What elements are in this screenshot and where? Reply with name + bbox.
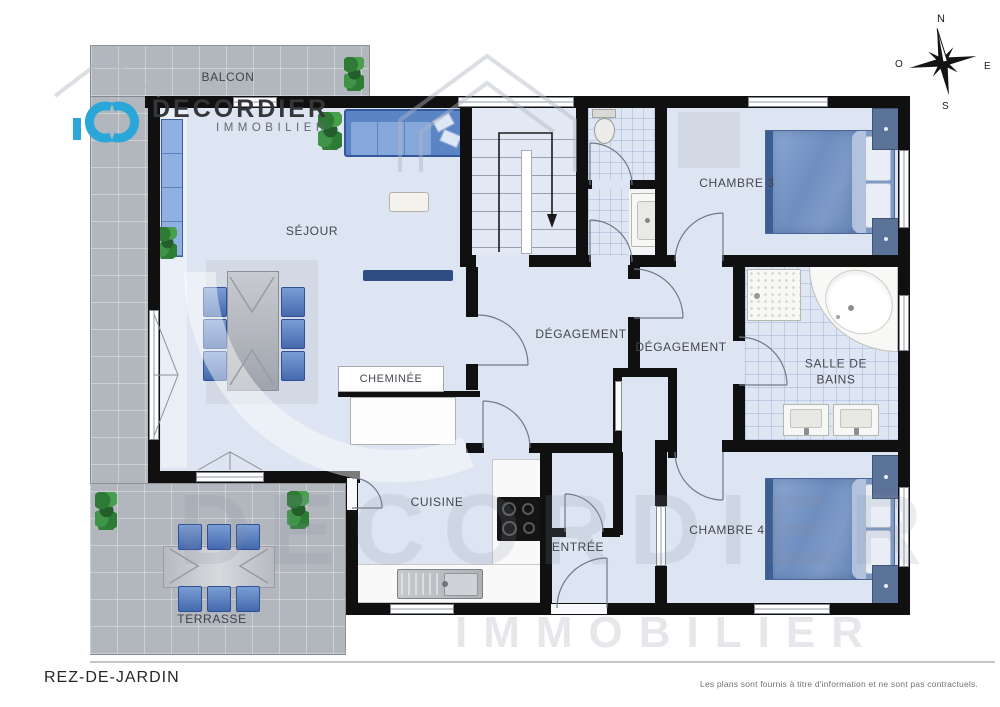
room-label-terrasse: TERRASSE xyxy=(177,612,246,626)
terrace-door xyxy=(196,472,264,482)
dining-chair xyxy=(281,287,305,317)
room-label-degagement-2: DÉGAGEMENT xyxy=(635,340,726,354)
staircase xyxy=(472,108,576,255)
room-label-degagement-1: DÉGAGEMENT xyxy=(535,327,626,341)
wall xyxy=(733,255,745,341)
brand-logo: DECORDIER IMMOBILIER xyxy=(73,90,423,150)
brand-tagline: IMMOBILIER xyxy=(216,122,329,134)
window xyxy=(899,487,909,567)
dining-chair xyxy=(203,319,227,349)
fireplace-label: CHEMINÉE xyxy=(360,373,423,385)
closet-door-panel xyxy=(615,381,622,431)
room-label-chambre4: CHAMBRE 4 xyxy=(689,523,764,537)
window xyxy=(899,295,909,351)
dining-chair xyxy=(203,351,227,381)
dining-chair xyxy=(203,287,227,317)
dining-chair xyxy=(281,319,305,349)
nightstand xyxy=(872,218,900,260)
dining-table xyxy=(227,271,279,391)
washroom-floor xyxy=(588,189,631,255)
bed-duvet xyxy=(773,479,856,579)
window xyxy=(390,604,454,614)
sink-basin xyxy=(444,573,478,596)
shower xyxy=(747,269,801,321)
wall xyxy=(529,443,613,453)
nightstand xyxy=(872,565,900,607)
fireplace-label-box: CHEMINÉE xyxy=(338,366,444,392)
toilet-tank xyxy=(592,109,616,118)
terrace-table xyxy=(163,546,275,588)
washbasin-faucet xyxy=(645,218,650,223)
entry-door-gap xyxy=(551,604,607,614)
window xyxy=(754,604,830,614)
footer-divider xyxy=(90,661,995,663)
wall xyxy=(540,528,566,537)
fireplace-hearth xyxy=(350,397,456,445)
wall xyxy=(576,180,592,189)
bathroom-sink-faucet xyxy=(854,428,859,435)
nightstand xyxy=(872,108,900,150)
stair-stringer xyxy=(521,150,532,254)
floor-level-title: REZ-DE-JARDIN xyxy=(44,669,180,687)
coffee-table xyxy=(389,192,429,212)
wall xyxy=(655,440,677,452)
bed-duvet xyxy=(773,131,856,233)
wall xyxy=(460,255,476,267)
terrace-chair xyxy=(207,524,231,550)
brand-name: DECORDIER xyxy=(152,95,329,124)
burner xyxy=(523,522,535,534)
plant xyxy=(157,227,177,259)
wall xyxy=(733,384,745,452)
wall xyxy=(655,108,667,258)
wall xyxy=(460,108,472,258)
bathroom-sink-bowl xyxy=(840,409,872,428)
room-label-balcon: BALCON xyxy=(202,70,255,84)
burner xyxy=(522,503,534,515)
wall xyxy=(529,255,591,267)
sink-drainboard xyxy=(401,573,441,595)
wall xyxy=(722,440,910,452)
french-window xyxy=(149,310,159,440)
wall xyxy=(466,267,478,317)
plant xyxy=(95,492,117,530)
wall xyxy=(722,255,910,267)
room-label-cuisine: CUISINE xyxy=(411,495,464,509)
burner xyxy=(502,502,516,516)
bathroom-sink-faucet xyxy=(804,428,809,435)
bed-footboard xyxy=(766,479,773,579)
window xyxy=(748,97,828,107)
room-label-chambre3: CHAMBRE 3 xyxy=(699,176,774,190)
nightstand xyxy=(872,455,900,499)
dining-chair xyxy=(281,351,305,381)
wall xyxy=(628,265,640,279)
compass-north: N xyxy=(937,13,945,25)
bedroom3-light xyxy=(678,112,740,168)
terrace-chair xyxy=(207,586,231,612)
sink-faucet xyxy=(442,581,448,587)
tv-console xyxy=(363,270,453,281)
door-closed xyxy=(656,506,666,566)
bathtub-faucet xyxy=(848,305,854,311)
compass-rose: N S O E xyxy=(893,10,993,110)
terrace-chair xyxy=(178,586,202,612)
compass-east: E xyxy=(984,61,991,72)
terrace-chair xyxy=(236,524,260,550)
wall xyxy=(655,566,667,615)
bathtub-faucet xyxy=(836,315,840,319)
burner xyxy=(502,521,517,536)
kitchen-sink xyxy=(397,569,483,599)
wall xyxy=(613,452,623,535)
window xyxy=(899,150,909,228)
wall xyxy=(466,364,478,390)
bathroom-sink-bowl xyxy=(790,409,822,428)
bathroom-sink xyxy=(833,404,879,436)
sofa-cushion xyxy=(439,129,462,148)
compass-west: O xyxy=(895,59,903,70)
bathroom-sink xyxy=(783,404,829,436)
disclaimer-text: Les plans sont fournis à titre d'informa… xyxy=(700,679,978,689)
room-label-entree: ENTRÉE xyxy=(552,540,604,554)
bed-fold xyxy=(852,479,866,579)
floor-plan-page: CHEMINÉE xyxy=(0,0,1000,707)
cooktop xyxy=(497,497,541,541)
window xyxy=(458,97,574,107)
terrace-chair xyxy=(236,586,260,612)
brand-logo-icon xyxy=(73,92,145,148)
compass-south: S xyxy=(942,101,949,110)
kitchen-terrace-door-gap xyxy=(347,478,357,510)
wall xyxy=(466,443,484,453)
watermark-tagline: IMMOBILIER xyxy=(455,608,879,658)
room-label-sejour: SÉJOUR xyxy=(286,224,338,238)
plant xyxy=(344,57,364,91)
plant xyxy=(287,491,309,529)
terrace-chair xyxy=(178,524,202,550)
shower-drain xyxy=(754,293,760,299)
bed-fold xyxy=(852,131,866,233)
room-label-salle-de-bains: SALLE DE BAINS xyxy=(793,356,879,387)
